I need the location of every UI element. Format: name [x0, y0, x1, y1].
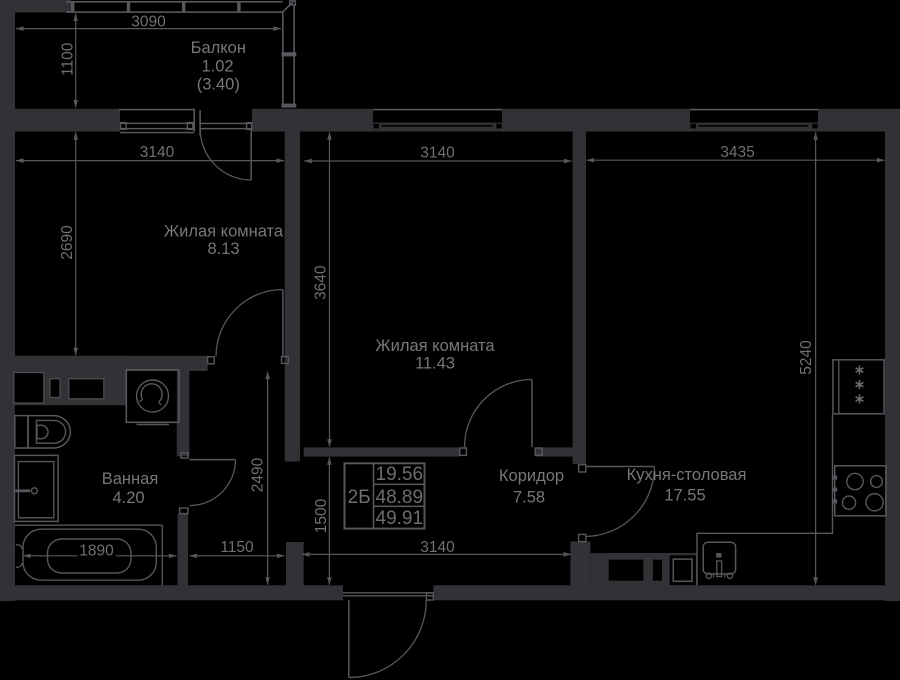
svg-text:5240: 5240	[798, 340, 815, 375]
svg-text:Кухня-столовая: Кухня-столовая	[627, 466, 747, 484]
svg-text:4.20: 4.20	[112, 489, 144, 507]
svg-text:2490: 2490	[249, 457, 266, 492]
svg-text:Ванная: Ванная	[102, 470, 159, 488]
svg-text:3140: 3140	[140, 144, 175, 161]
svg-text:Коридор: Коридор	[499, 467, 564, 485]
svg-text:48.89: 48.89	[376, 487, 424, 508]
svg-text:3090: 3090	[131, 14, 166, 31]
svg-text:8.13: 8.13	[207, 240, 239, 258]
svg-text:2Б: 2Б	[348, 487, 371, 508]
svg-text:Жилая комната: Жилая комната	[375, 337, 495, 355]
svg-text:3640: 3640	[312, 265, 329, 300]
svg-text:1500: 1500	[313, 498, 330, 533]
svg-text:1.02: 1.02	[201, 57, 233, 75]
svg-text:(3.40): (3.40)	[197, 76, 240, 94]
svg-text:19.56: 19.56	[376, 464, 424, 485]
svg-text:1890: 1890	[79, 543, 114, 560]
svg-text:11.43: 11.43	[415, 355, 455, 373]
svg-text:1150: 1150	[220, 539, 254, 556]
svg-text:2690: 2690	[59, 225, 76, 260]
svg-text:3140: 3140	[420, 539, 455, 556]
svg-text:7.58: 7.58	[513, 489, 545, 507]
svg-text:Жилая комната: Жилая комната	[164, 223, 284, 241]
svg-text:3140: 3140	[420, 144, 455, 161]
svg-text:49.91: 49.91	[376, 508, 424, 529]
svg-text:Балкон: Балкон	[191, 39, 246, 57]
svg-text:17.55: 17.55	[664, 487, 705, 505]
svg-text:3435: 3435	[720, 144, 754, 161]
svg-text:1100: 1100	[60, 42, 77, 76]
